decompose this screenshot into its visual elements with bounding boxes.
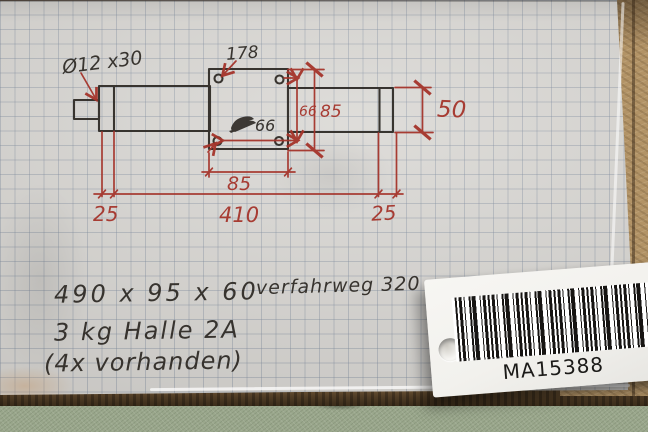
dimension-label-body-length: 410 (219, 203, 259, 227)
barcode-bars (454, 283, 648, 362)
note-quantity: (4x vorhanden) (44, 346, 243, 377)
photo-scene: Ø12 x30 178 66 (0, 0, 648, 432)
note-outer-dimensions: 490 x 95 x 60 (54, 277, 259, 309)
barcode (451, 282, 648, 361)
dimension-label-stub: Ø12 x30 (60, 47, 144, 79)
dimension-label-flange-left: 25 (93, 202, 118, 226)
note-travel-distance: verfahrweg 320 (256, 273, 421, 299)
dimension-label-hole-spacing-inner: 66 (255, 116, 275, 135)
dimension-label-block-height: 85 (320, 102, 342, 122)
dimension-label-block-width: 85 (227, 173, 251, 195)
dimension-label-hole-spacing-right: 66 (299, 104, 317, 120)
part-outline (74, 69, 393, 149)
dimension-label-block-top: 178 (225, 43, 259, 65)
scribbled-out-value (229, 116, 257, 133)
note-weight-hall: 3 kg Halle 2A (54, 315, 240, 346)
inventory-tag: MA15388 (424, 261, 648, 398)
dimension-label-flange-right: 25 (370, 200, 397, 225)
dimension-label-right-end-height: 50 (437, 97, 467, 124)
